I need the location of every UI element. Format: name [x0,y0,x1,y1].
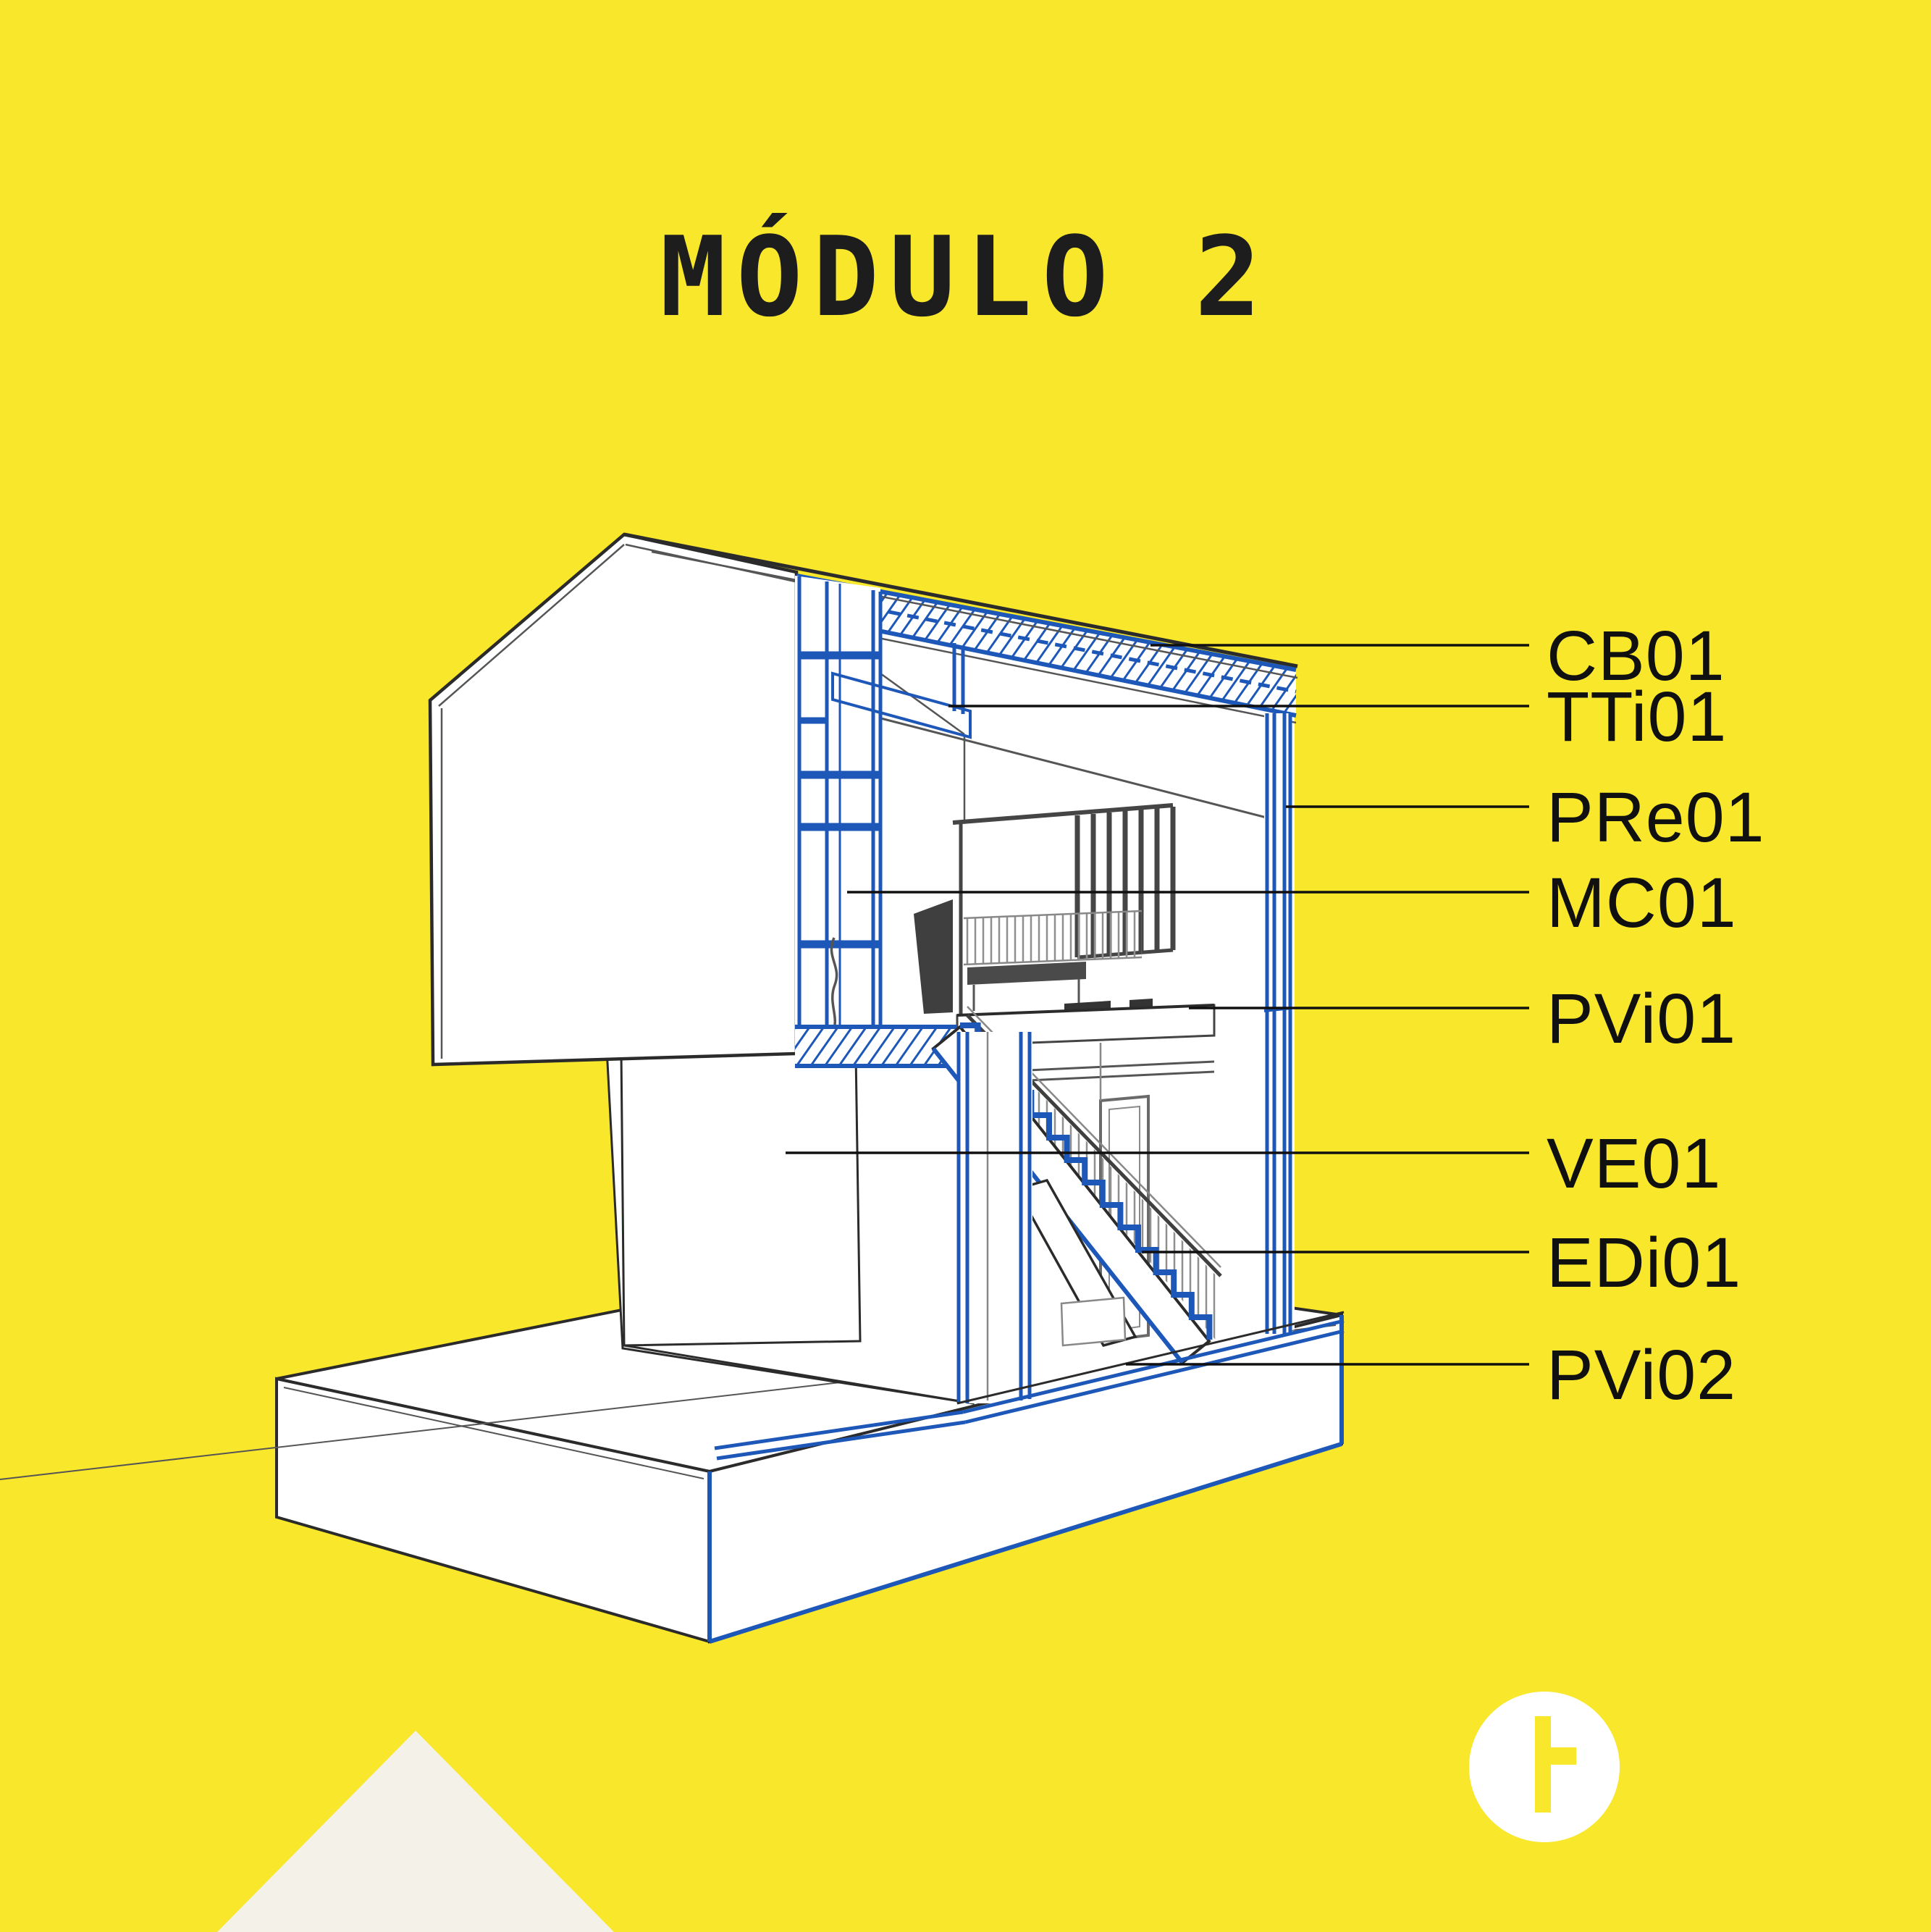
lower-cut-column [957,1032,1032,1403]
logo-bar-nub [1551,1747,1576,1765]
gable-wall [430,534,796,1064]
logo-bar-vertical [1535,1716,1551,1813]
slat-railing [964,911,1142,965]
label-pre01: PRe01 [1547,778,1765,857]
poster-page: { "title": "MÓDULO 2", "labels": ["CB01"… [0,0,1931,1931]
label-edi01: EDi01 [1547,1223,1741,1303]
label-pvi01: PVi01 [1547,979,1736,1059]
logo-circle-t-icon [1469,1692,1620,1842]
label-tti01: TTi01 [1547,677,1727,757]
label-pvi02: PVi02 [1547,1335,1736,1415]
module-axonometric-diagram [0,0,1931,1931]
lower-wall [607,1049,973,1403]
label-mc01: MC01 [1547,863,1737,943]
label-ve01: VE01 [1547,1124,1721,1204]
